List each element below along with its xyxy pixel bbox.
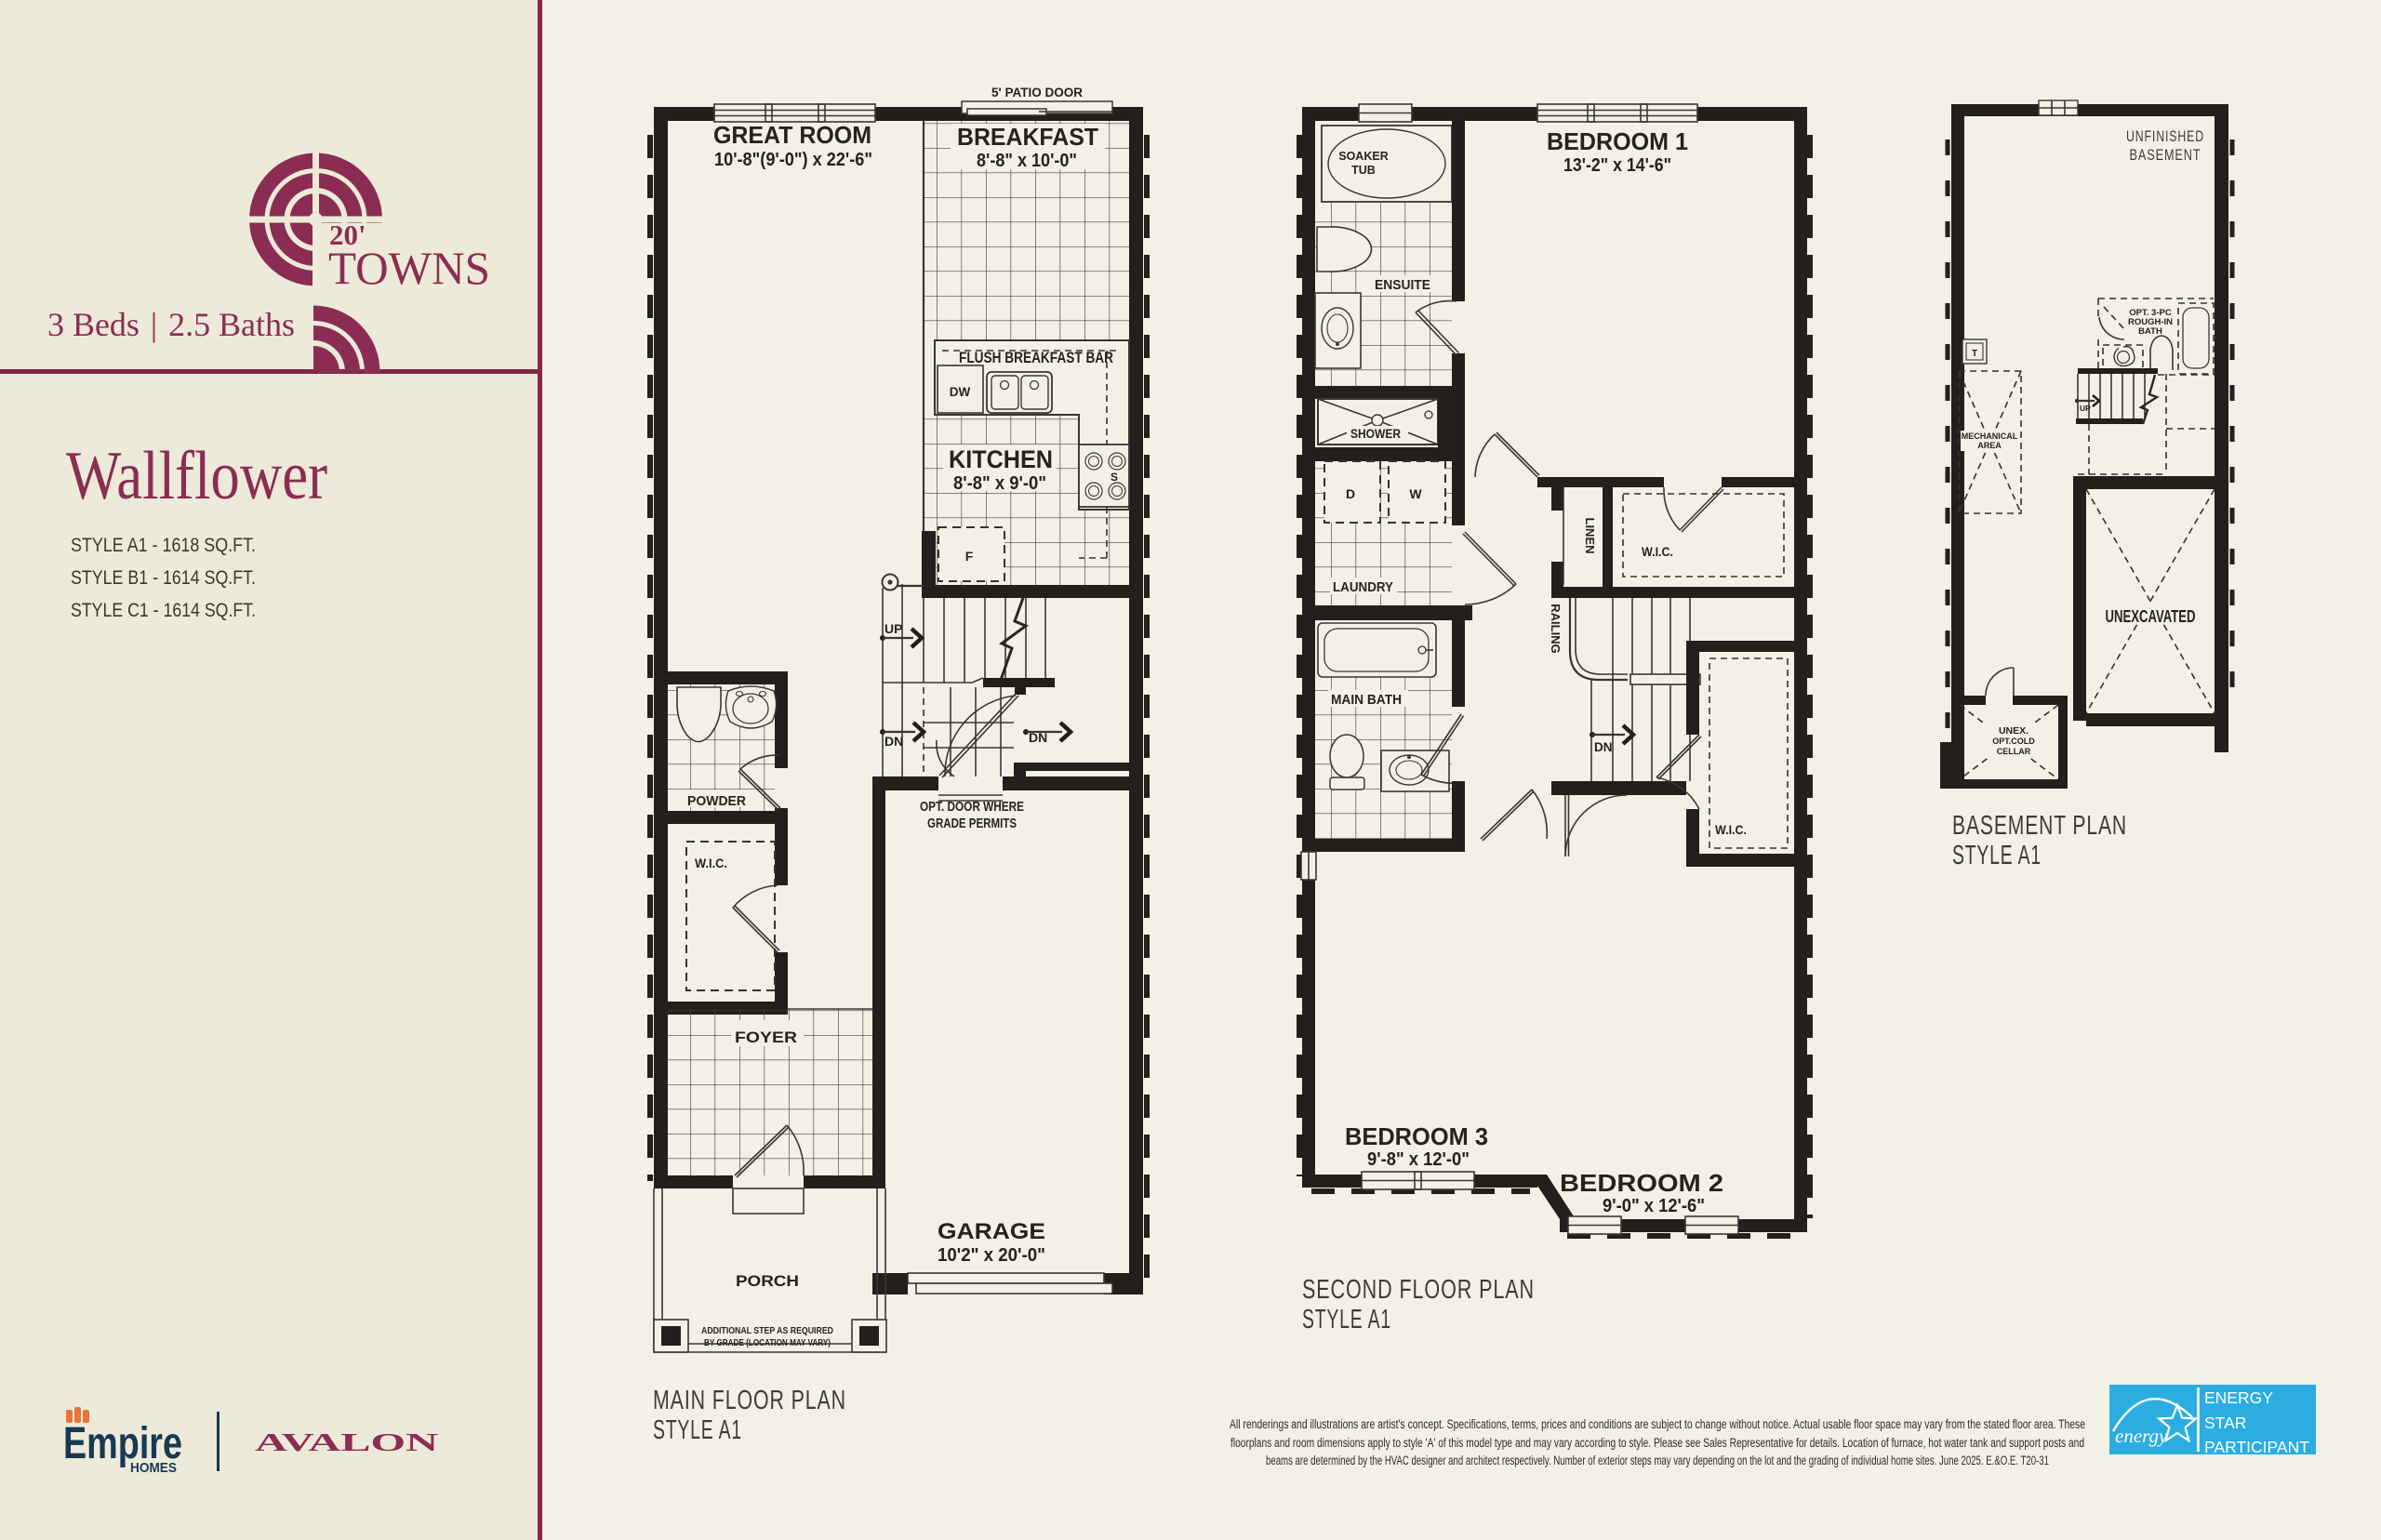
svg-text:BASEMENT PLAN: BASEMENT PLAN bbox=[1952, 811, 2127, 841]
svg-text:MAIN BATH: MAIN BATH bbox=[1331, 693, 1402, 708]
svg-text:8'-8" x 9'-0": 8'-8" x 9'-0" bbox=[953, 473, 1046, 494]
svg-text:POWDER: POWDER bbox=[687, 793, 746, 809]
svg-text:BEDROOM 2: BEDROOM 2 bbox=[1560, 1169, 1723, 1197]
svg-text:DN: DN bbox=[1594, 740, 1613, 754]
svg-text:BY GRADE (LOCATION MAY VARY): BY GRADE (LOCATION MAY VARY) bbox=[704, 1337, 831, 1348]
svg-text:STYLE A1 - 1618 SQ.FT.: STYLE A1 - 1618 SQ.FT. bbox=[71, 535, 256, 556]
svg-text:MAIN FLOOR PLAN: MAIN FLOOR PLAN bbox=[653, 1386, 846, 1415]
svg-text:OPT. DOOR WHERE: OPT. DOOR WHERE bbox=[920, 800, 1024, 815]
svg-text:TUB: TUB bbox=[1351, 164, 1376, 177]
svg-text:AVALON: AVALON bbox=[255, 1428, 439, 1456]
svg-text:W.I.C.: W.I.C. bbox=[1642, 545, 1673, 559]
svg-text:PORCH: PORCH bbox=[736, 1272, 799, 1290]
svg-text:energy: energy bbox=[2115, 1425, 2168, 1447]
svg-text:W.I.C.: W.I.C. bbox=[1715, 823, 1747, 837]
svg-text:SHOWER: SHOWER bbox=[1350, 427, 1401, 441]
svg-text:SECOND FLOOR PLAN: SECOND FLOOR PLAN bbox=[1302, 1275, 1535, 1305]
svg-text:All renderings and illustratio: All renderings and illustrations are art… bbox=[1230, 1417, 2085, 1431]
svg-text:STAR: STAR bbox=[2204, 1414, 2246, 1432]
svg-text:STYLE A1: STYLE A1 bbox=[1302, 1305, 1391, 1334]
svg-text:TOWNS: TOWNS bbox=[328, 242, 490, 294]
svg-text:BATH: BATH bbox=[2138, 326, 2162, 337]
svg-text:10'-8"(9'-0") x 22'-6": 10'-8"(9'-0") x 22'-6" bbox=[714, 150, 872, 170]
svg-text:10'2" x 20'-0": 10'2" x 20'-0" bbox=[938, 1245, 1045, 1266]
svg-text:STYLE B1 - 1614 SQ.FT.: STYLE B1 - 1614 SQ.FT. bbox=[71, 567, 256, 589]
svg-text:9'-8" x 12'-0": 9'-8" x 12'-0" bbox=[1367, 1149, 1470, 1170]
svg-text:UNEXCAVATED: UNEXCAVATED bbox=[2106, 607, 2196, 626]
svg-text:S: S bbox=[1111, 471, 1118, 484]
svg-text:STYLE A1: STYLE A1 bbox=[653, 1415, 742, 1445]
svg-text:D: D bbox=[1346, 486, 1355, 501]
svg-text:BASEMENT: BASEMENT bbox=[2130, 146, 2201, 164]
svg-text:13'-2" x 14'-6": 13'-2" x 14'-6" bbox=[1563, 155, 1671, 176]
svg-text:UNEX.: UNEX. bbox=[1999, 725, 2029, 737]
svg-text:STYLE C1 - 1614 SQ.FT.: STYLE C1 - 1614 SQ.FT. bbox=[71, 600, 256, 621]
svg-text:9'-0" x 12'-6": 9'-0" x 12'-6" bbox=[1603, 1196, 1705, 1216]
svg-text:FOYER: FOYER bbox=[735, 1029, 797, 1046]
svg-text:floorplans and room dimensions: floorplans and room dimensions apply to … bbox=[1230, 1436, 2084, 1450]
svg-text:AREA: AREA bbox=[1977, 441, 2002, 450]
svg-text:UP: UP bbox=[2080, 404, 2091, 413]
svg-text:beams are determined by the HV: beams are determined by the HVAC designe… bbox=[1266, 1454, 2049, 1467]
svg-text:BEDROOM 3: BEDROOM 3 bbox=[1345, 1122, 1488, 1150]
svg-text:UP: UP bbox=[885, 621, 902, 636]
svg-text:GARAGE: GARAGE bbox=[938, 1219, 1045, 1244]
svg-text:PARTICIPANT: PARTICIPANT bbox=[2204, 1438, 2309, 1456]
svg-text:BREAKFAST: BREAKFAST bbox=[957, 123, 1098, 151]
svg-text:STYLE A1: STYLE A1 bbox=[1952, 841, 2042, 870]
svg-text:KITCHEN: KITCHEN bbox=[949, 445, 1053, 473]
svg-text:LINEN: LINEN bbox=[1583, 518, 1597, 554]
svg-text:DN: DN bbox=[885, 734, 903, 749]
svg-text:5' PATIO DOOR: 5' PATIO DOOR bbox=[991, 86, 1083, 100]
svg-text:F: F bbox=[965, 549, 974, 564]
svg-text:W: W bbox=[1409, 486, 1422, 501]
svg-text:CELLAR: CELLAR bbox=[1997, 747, 2031, 756]
svg-text:GRADE PERMITS: GRADE PERMITS bbox=[927, 816, 1017, 831]
svg-text:Wallflower: Wallflower bbox=[66, 438, 327, 514]
svg-text:GREAT ROOM: GREAT ROOM bbox=[713, 121, 871, 149]
svg-text:UNFINISHED: UNFINISHED bbox=[2126, 127, 2204, 145]
svg-text:RAILING: RAILING bbox=[1549, 604, 1563, 653]
svg-text:8'-8" x 10'-0": 8'-8" x 10'-0" bbox=[977, 151, 1077, 171]
svg-text:BEDROOM 1: BEDROOM 1 bbox=[1547, 127, 1688, 155]
svg-text:ENERGY: ENERGY bbox=[2204, 1388, 2273, 1407]
svg-text:DW: DW bbox=[950, 385, 971, 399]
svg-text:HOMES: HOMES bbox=[130, 1460, 177, 1476]
svg-text:OPT.COLD: OPT.COLD bbox=[1992, 737, 2035, 746]
svg-text:ADDITIONAL STEP AS REQUIRED: ADDITIONAL STEP AS REQUIRED bbox=[701, 1325, 833, 1336]
svg-text:SOAKER: SOAKER bbox=[1338, 150, 1388, 163]
svg-text:FLUSH BREAKFAST BAR: FLUSH BREAKFAST BAR bbox=[959, 350, 1113, 366]
svg-text:MECHANICAL: MECHANICAL bbox=[1962, 431, 2018, 441]
svg-text:ENSUITE: ENSUITE bbox=[1375, 278, 1430, 293]
svg-text:LAUNDRY: LAUNDRY bbox=[1333, 580, 1393, 595]
svg-text:T: T bbox=[1972, 349, 1977, 359]
svg-text:3 Beds | 2.5 Baths: 3 Beds | 2.5 Baths bbox=[47, 306, 295, 343]
svg-text:W.I.C.: W.I.C. bbox=[695, 856, 727, 870]
